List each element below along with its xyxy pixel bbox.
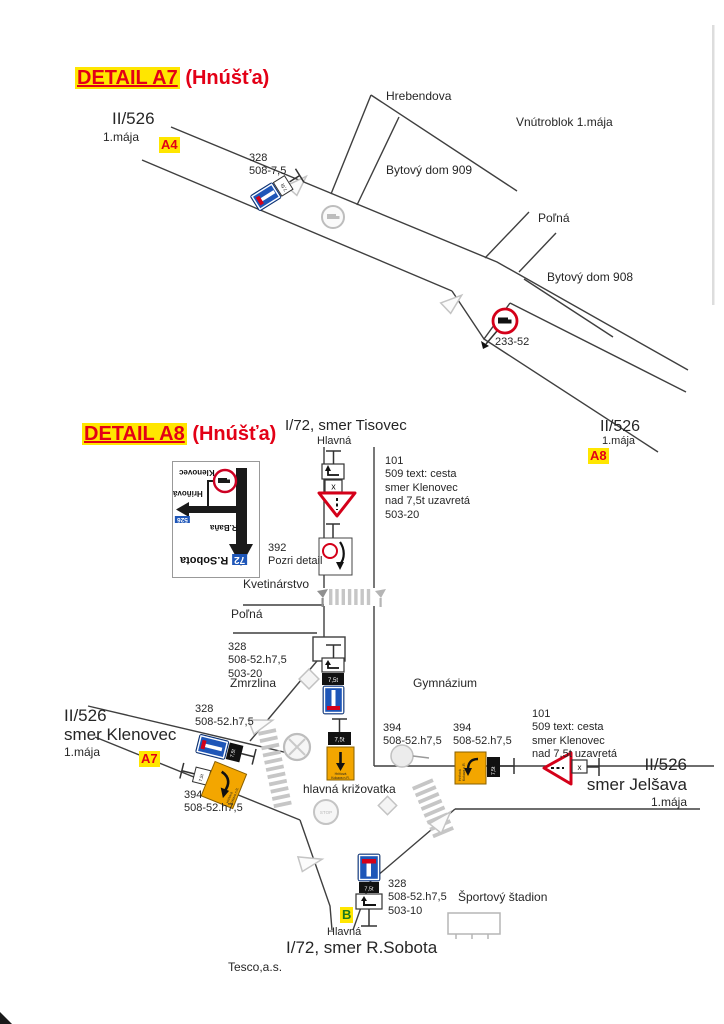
road-line: [510, 303, 686, 392]
road-line-south-arm: [300, 820, 332, 930]
street-vnutroblok: Vnútroblok 1.mája: [516, 115, 613, 130]
detail-a7-title: DETAIL A7 (Hnúšťa): [75, 66, 269, 90]
weight-panel-text: 7,5t: [334, 738, 344, 744]
detour-cluster-east: Hriňová Kokava n.R. 7,5t: [455, 752, 514, 784]
poi-gymnazium: Gymnázium: [413, 676, 477, 691]
crosswalk-north: [329, 589, 370, 605]
diamond-ghost-icon: [378, 796, 396, 814]
sign-label-233-52: 233-52: [495, 336, 529, 349]
poi-zmrzlina: Zmrzlina: [230, 676, 276, 691]
a7-road-ref: II/526: [112, 109, 155, 130]
a8-east-road-ref: II/526: [557, 755, 687, 776]
sign-label-328-a7: 328 508-7,5: [249, 152, 286, 179]
sign-label-394-east: 394 508-52.h7,5: [453, 722, 512, 749]
pedestrian-marker-icon: [375, 589, 386, 607]
a8-east-street: 1.mája: [557, 795, 687, 810]
a8-north-road-ref: I/72, smer Tisovec: [285, 417, 407, 435]
sign-detail-inset: Klenovec Hriňová 526 R.Baňa R.Sobota 72: [172, 461, 260, 578]
sign-label-328-west: 328 508-52.h7,5: [195, 703, 254, 730]
building-outline-south: [448, 913, 500, 939]
sign-label-392: 392 Pozri detail: [268, 542, 322, 569]
road-line-polna: [485, 212, 529, 258]
street-hrebendova: Hrebendova: [386, 89, 451, 104]
label-main-intersection: hlavná križovatka: [303, 782, 396, 797]
street-polna-a7: Poľná: [538, 211, 570, 226]
crosswalk-south: [412, 778, 454, 838]
sign-label-328-south: 328 508-52.h7,5 503-10: [388, 878, 447, 918]
a8-south-road-ref: I/72, smer R.Sobota: [286, 938, 437, 959]
poi-tesco: Tesco,a.s.: [228, 960, 282, 975]
scanned-traffic-plan-page: 7,5t: [0, 0, 724, 1024]
a8-west-direction: smer Klenovec: [64, 725, 176, 746]
badge-a4: A4: [159, 137, 180, 153]
inset-rsobota-label: R.Sobota: [180, 554, 228, 566]
a7-ghost-signs: [285, 176, 464, 314]
a7-end-street: 1.mája: [602, 435, 635, 448]
weight-panel-text: 7,5t: [491, 766, 497, 775]
a8-east-direction: smer Jelšava: [557, 775, 687, 796]
no-stopping-ghost-icon: [284, 734, 310, 760]
inset-rbana-label: R.Baňa: [210, 523, 238, 532]
detour-cluster-mid: 7,5t Hriňová Kokava n.R.: [327, 719, 354, 780]
diagram-canvas: 7,5t: [0, 0, 724, 1024]
detour-text: Kokava n.R.: [462, 762, 466, 781]
stop-ghost-text: STOP: [320, 810, 332, 815]
weight-panel-text: 7,5t: [328, 678, 338, 684]
road-line-dom908: [524, 279, 613, 337]
no-trucks-mini-icon: [323, 544, 337, 558]
badge-a8: A8: [588, 448, 609, 464]
scan-edge-artifact: [712, 25, 715, 305]
note-road-closed-north: 101 509 text: cesta smer Klenovec nad 7,…: [385, 455, 470, 522]
road-line-hrebendova: [357, 117, 399, 205]
diamond-ghost-icon: [299, 669, 319, 689]
street-bytovy909: Bytový dom 909: [386, 163, 472, 178]
poi-stadion: Športový štadion: [458, 890, 547, 905]
badge-b: B: [340, 907, 353, 923]
a7-street-label: 1.mája: [103, 130, 139, 145]
road-line-hrebendova: [331, 95, 371, 194]
x-panel-text: x: [331, 482, 336, 492]
detail-a8-title: DETAIL A8 (Hnúšťa): [82, 422, 276, 446]
poi-kvetinarstvo: Kvetinárstvo: [243, 577, 309, 592]
a7-end-road-ref: II/526: [600, 417, 640, 437]
a8-north-street: Hlavná: [317, 435, 351, 448]
detail-a7-title-highlight: DETAIL A7: [75, 67, 180, 89]
inset-klenovec-label: Klenovec: [179, 468, 215, 477]
left-arrow-icon: [176, 502, 189, 517]
no-trucks-ghost-icon: [322, 206, 344, 228]
weight-panel-text: 7,5t: [364, 887, 374, 893]
detour-text: Kokava n.R.: [331, 776, 350, 780]
sign-label-394-mid: 394 508-52.h7,5: [383, 722, 442, 749]
badge-a7: A7: [139, 751, 160, 767]
sign-label-394-west: 394 508-52.h7,5: [184, 789, 243, 816]
note-road-closed-east: 101 509 text: cesta smer Klenovec nad 7,…: [532, 708, 617, 762]
detail-a7-title-suffix: (Hnúšťa): [180, 67, 270, 89]
scan-corner-artifact: [0, 1012, 12, 1024]
road-line-polna: [519, 233, 556, 272]
dead-end-cluster-south: 7,5t: [356, 854, 382, 926]
route-shield-72: 72: [232, 554, 247, 565]
stop-ghost-icon: STOP: [314, 800, 338, 824]
detail-a8-title-highlight: DETAIL A8: [82, 423, 187, 445]
street-polna-a8: Poľná: [231, 607, 263, 622]
street-bytovy908: Bytový dom 908: [547, 270, 633, 285]
detail-a8-title-suffix: (Hnúšťa): [187, 423, 277, 445]
a8-west-road-ref: II/526: [64, 706, 107, 727]
inset-hrinova-label: Hriňová: [173, 489, 203, 498]
route-shield-526: 526: [175, 516, 190, 523]
a8-west-street: 1.mája: [64, 745, 100, 760]
